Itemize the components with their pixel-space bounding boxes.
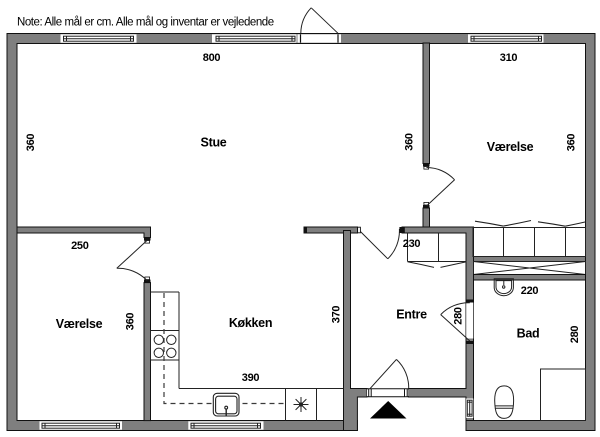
svg-text:Værelse: Værelse	[487, 140, 534, 154]
svg-text:Køkken: Køkken	[229, 316, 272, 330]
svg-text:310: 310	[500, 52, 518, 64]
svg-text:Note: Alle mål er cm. Alle mål: Note: Alle mål er cm. Alle mål og invent…	[17, 17, 274, 29]
svg-text:Bad: Bad	[517, 327, 540, 341]
svg-text:Stue: Stue	[201, 136, 227, 150]
svg-text:360: 360	[125, 313, 137, 331]
svg-text:360: 360	[25, 134, 37, 152]
svg-text:360: 360	[566, 134, 578, 152]
svg-text:800: 800	[203, 52, 221, 64]
svg-text:Værelse: Værelse	[56, 317, 103, 331]
svg-text:390: 390	[242, 372, 260, 384]
svg-text:370: 370	[331, 306, 343, 324]
svg-text:280: 280	[569, 326, 581, 344]
svg-text:280: 280	[453, 307, 465, 325]
svg-text:220: 220	[521, 285, 539, 297]
svg-text:230: 230	[403, 238, 421, 250]
svg-text:Entre: Entre	[396, 308, 427, 322]
svg-text:250: 250	[71, 240, 89, 252]
svg-text:360: 360	[404, 133, 416, 151]
